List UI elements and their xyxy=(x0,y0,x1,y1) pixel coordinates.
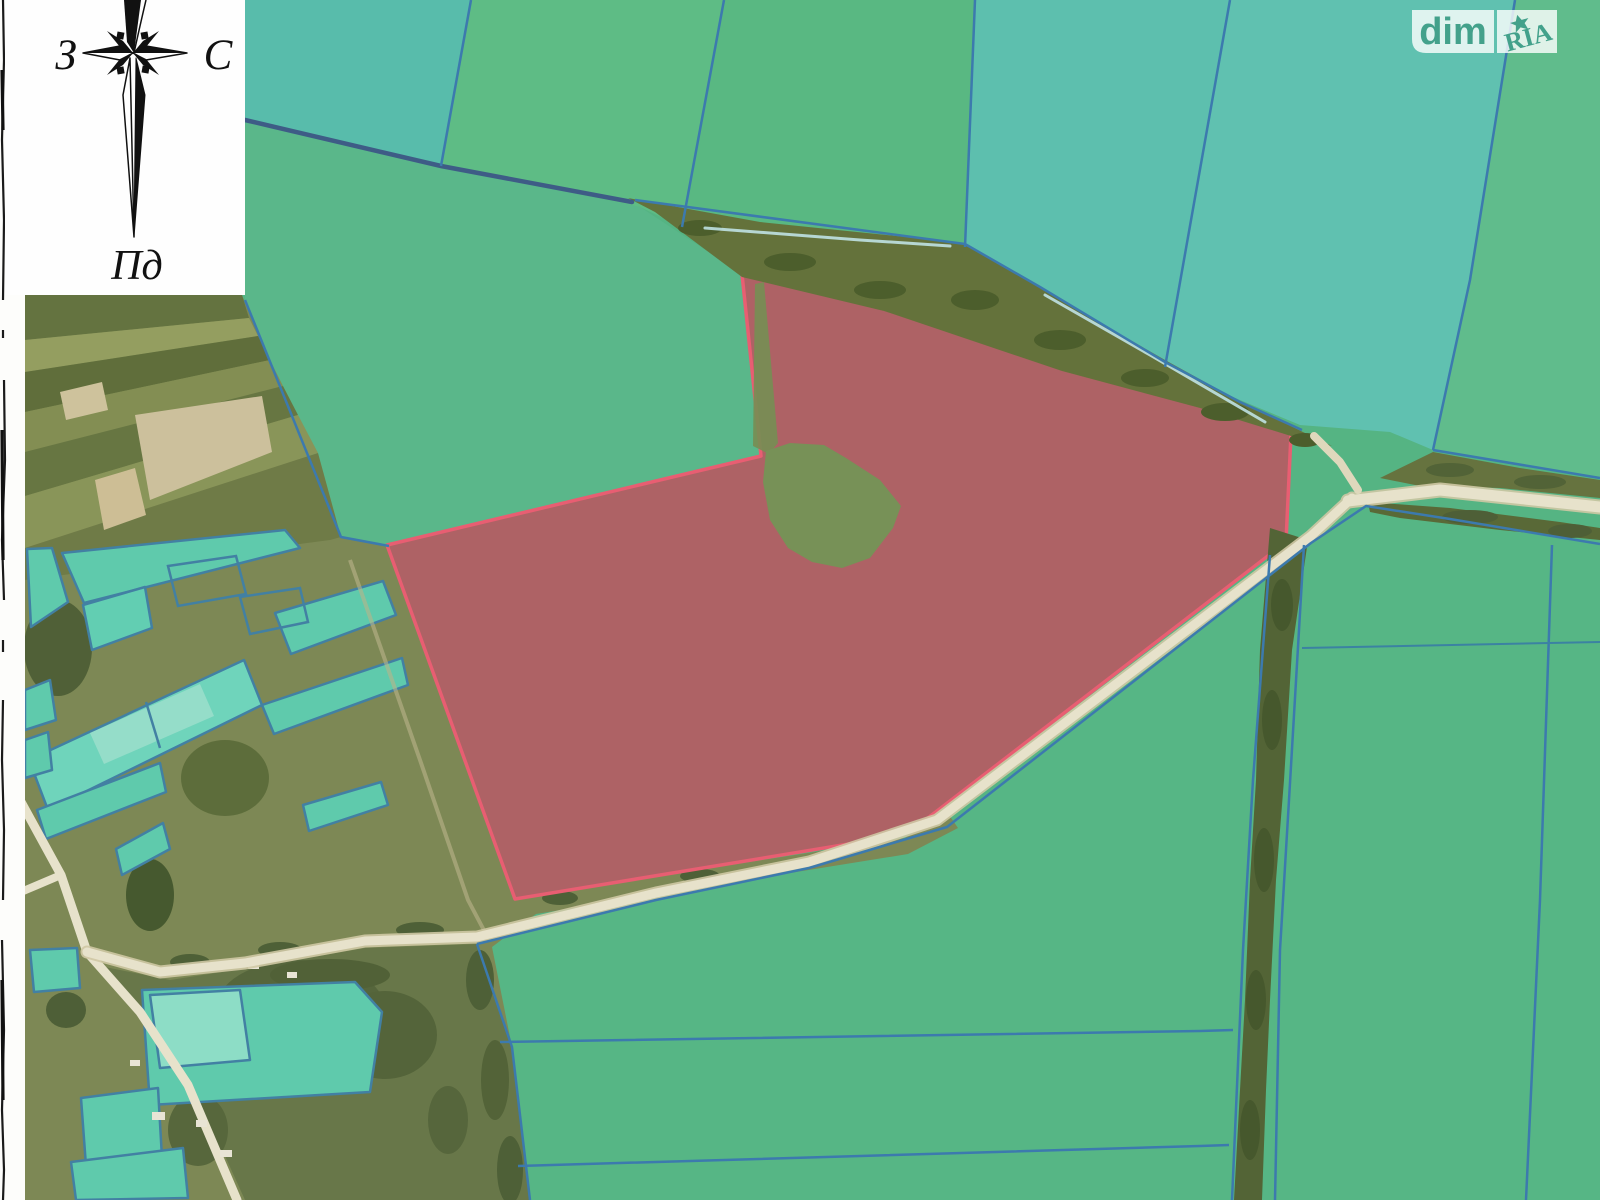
svg-text:С: С xyxy=(204,32,234,79)
svg-text:dim: dim xyxy=(1419,11,1487,53)
svg-text:Пд: Пд xyxy=(110,243,163,289)
svg-text:З: З xyxy=(55,32,76,79)
